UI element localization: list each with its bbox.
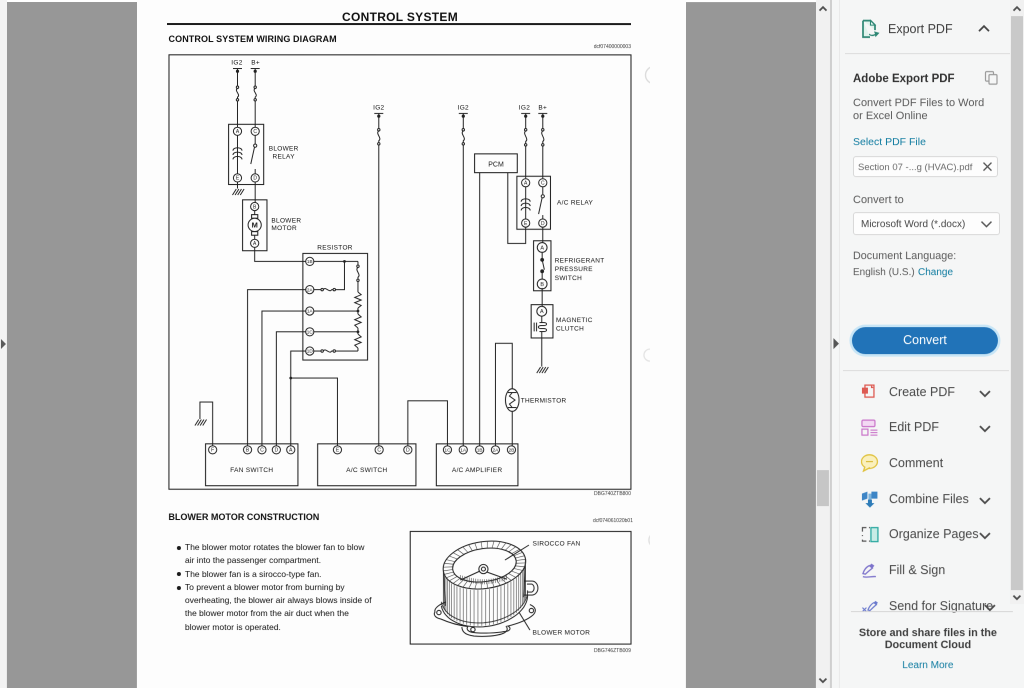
svg-text:1C: 1C xyxy=(444,448,451,453)
svg-text:SIROCCO FAN: SIROCCO FAN xyxy=(533,540,581,547)
svg-text:2B: 2B xyxy=(509,448,515,453)
svg-text:PRESSURE: PRESSURE xyxy=(555,266,594,273)
svg-text:B: B xyxy=(540,282,544,288)
svg-text:BLOWER: BLOWER xyxy=(271,217,301,224)
svg-text:CLUTCH: CLUTCH xyxy=(556,326,584,333)
svg-text:IG2: IG2 xyxy=(373,105,384,112)
svg-text:IG2: IG2 xyxy=(458,105,469,112)
svg-text:1B: 1B xyxy=(477,448,483,453)
svg-text:C: C xyxy=(260,448,264,454)
svg-text:B+: B+ xyxy=(538,105,547,112)
svg-text:F: F xyxy=(211,448,214,454)
svg-text:C: C xyxy=(253,129,257,135)
svg-text:A/C AMPLIFIER: A/C AMPLIFIER xyxy=(452,467,503,474)
svg-text:A: A xyxy=(540,245,544,251)
svg-text:BLOWER: BLOWER xyxy=(269,146,299,153)
svg-text:1B: 1B xyxy=(307,259,313,264)
svg-text:B+: B+ xyxy=(251,60,260,67)
svg-text:M: M xyxy=(252,221,258,230)
svg-text:A/C RELAY: A/C RELAY xyxy=(557,199,594,206)
svg-text:1A: 1A xyxy=(307,309,314,314)
svg-text:C: C xyxy=(377,448,381,454)
svg-text:1D: 1D xyxy=(307,349,314,354)
svg-text:RELAY: RELAY xyxy=(272,153,295,160)
svg-text:PCM: PCM xyxy=(488,161,504,168)
svg-text:D: D xyxy=(253,176,257,182)
svg-text:2A: 2A xyxy=(307,287,314,292)
svg-text:2A: 2A xyxy=(493,448,500,453)
svg-text:MOTOR: MOTOR xyxy=(271,225,297,232)
svg-text:FAN SWITCH: FAN SWITCH xyxy=(230,467,273,474)
svg-text:D: D xyxy=(406,448,410,454)
svg-text:IG2: IG2 xyxy=(231,60,242,67)
svg-text:THERMISTOR: THERMISTOR xyxy=(521,398,567,405)
svg-text:BLOWER MOTOR: BLOWER MOTOR xyxy=(533,630,591,637)
svg-text:A: A xyxy=(540,309,544,315)
svg-text:D: D xyxy=(541,221,545,227)
svg-text:1C: 1C xyxy=(307,330,314,335)
svg-text:C: C xyxy=(541,181,545,187)
svg-text:MAGNETIC: MAGNETIC xyxy=(556,317,593,324)
svg-text:IG2: IG2 xyxy=(519,105,530,112)
svg-text:RESISTOR: RESISTOR xyxy=(317,244,353,251)
svg-text:SWITCH: SWITCH xyxy=(555,275,582,282)
svg-text:D: D xyxy=(275,448,279,454)
svg-text:REFRIGERANT: REFRIGERANT xyxy=(555,257,605,264)
svg-text:1A: 1A xyxy=(460,448,467,453)
svg-text:A/C SWITCH: A/C SWITCH xyxy=(346,467,387,474)
